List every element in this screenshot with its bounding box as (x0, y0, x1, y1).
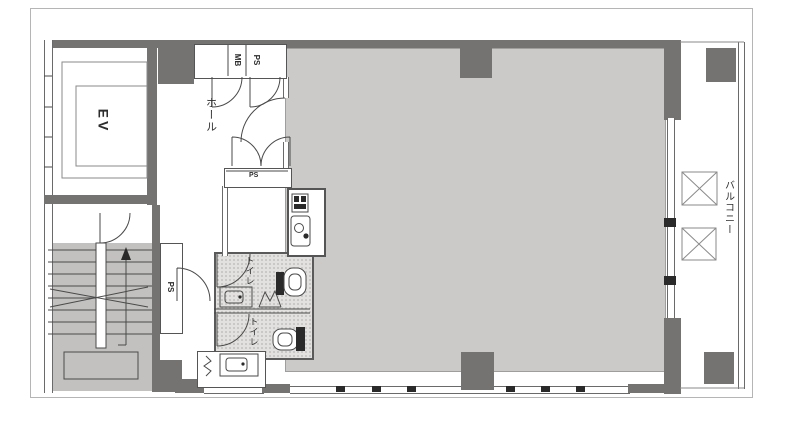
floor-plan: EV MB PS ホール PS トイレ トイレ PS バルコニー (0, 0, 787, 434)
toilet-lower-label: トイレ (248, 317, 257, 347)
stair-treads (48, 243, 152, 379)
pipe-shaft-top-label: PS (252, 55, 260, 66)
hall-label: ホール (204, 97, 216, 133)
toilet-lower-icon (273, 327, 305, 351)
balcony-label: バルコニー (722, 180, 733, 235)
water-heater-icon (292, 194, 308, 212)
toilet-upper-icon (276, 268, 306, 296)
kitchenette-sink-icon (291, 216, 310, 246)
pipe-shaft-hall-label: PS (249, 172, 258, 179)
vanity-sink-icon (220, 287, 252, 307)
meter-box-label: MB (233, 54, 241, 66)
balcony-hatch-boxes (680, 42, 744, 388)
elevator-label: EV (96, 109, 111, 134)
window-mullions (44, 76, 676, 392)
pipe-shaft-stair-label: PS (166, 282, 174, 293)
nook-sink-icon (204, 354, 258, 376)
door-arcs (100, 77, 290, 346)
plan-linework (0, 0, 787, 434)
toilet-upper-label: トイレ (244, 256, 253, 286)
